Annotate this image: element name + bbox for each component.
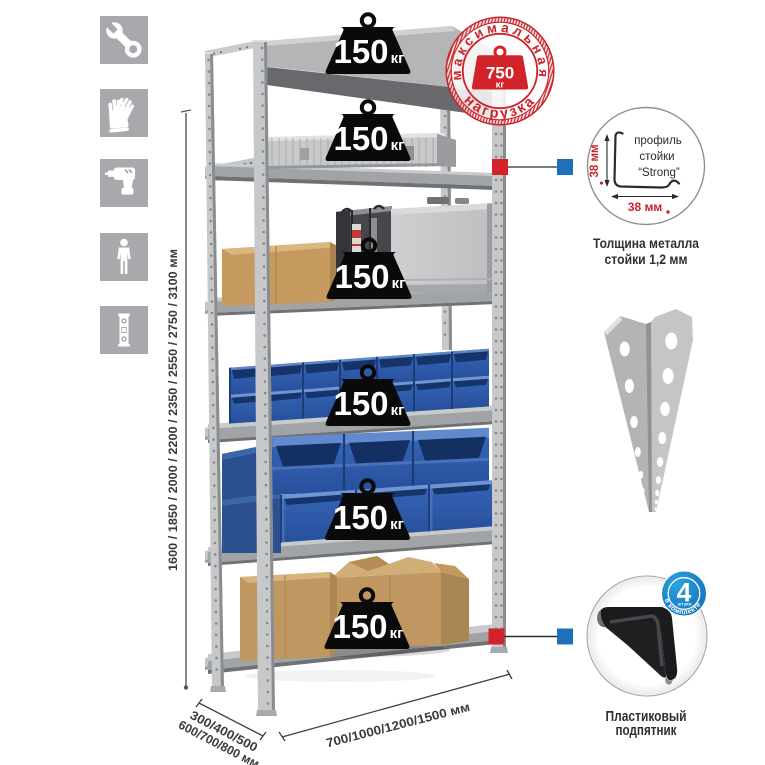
svg-text:кг: кг (390, 625, 404, 642)
svg-text:Толщина металла: Толщина металла (593, 235, 699, 251)
svg-text:“Strong”: “Strong” (638, 167, 680, 179)
svg-text:профиль: профиль (634, 135, 682, 147)
svg-text:кг: кг (390, 516, 404, 533)
svg-text:кг: кг (391, 50, 405, 67)
svg-text:150: 150 (334, 258, 389, 295)
svg-text:кг: кг (391, 137, 405, 154)
svg-text:150: 150 (333, 385, 388, 422)
svg-text:1600 / 1850 / 2000 / 2200 / 23: 1600 / 1850 / 2000 / 2200 / 2350 / 2550 … (166, 249, 180, 571)
svg-text:стойки: стойки (639, 151, 674, 163)
svg-text:штуки: штуки (678, 602, 692, 607)
svg-text:150: 150 (333, 120, 388, 157)
svg-text:38 мм: 38 мм (589, 144, 601, 177)
svg-text:38 мм: 38 мм (628, 200, 663, 214)
svg-text:стойки 1,2 мм: стойки 1,2 мм (605, 251, 688, 267)
svg-text:кг: кг (496, 80, 505, 91)
svg-text:150: 150 (333, 33, 388, 70)
svg-text:подпятник: подпятник (616, 722, 677, 739)
svg-text:кг: кг (392, 275, 406, 292)
svg-text:150: 150 (332, 608, 387, 645)
svg-text:150: 150 (333, 499, 388, 536)
svg-text:кг: кг (391, 402, 405, 419)
